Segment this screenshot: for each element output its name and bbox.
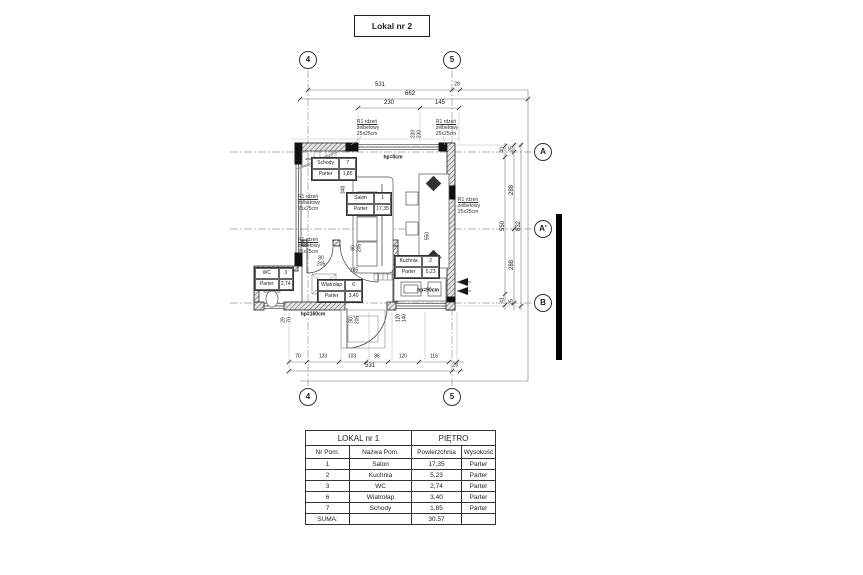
dim-label: 29 xyxy=(454,83,460,88)
parapet-note: hp=160cm xyxy=(301,313,326,318)
dim-label: 531 xyxy=(365,363,375,369)
grid-bubble-5-bottom: 5 xyxy=(443,388,461,406)
dim-label: 230 xyxy=(384,100,394,106)
table-title-row: LOKAL nr 1 PIĘTRO xyxy=(306,431,496,446)
table-row: 2Kuchnia 5,23Parter xyxy=(306,470,496,481)
dim-label: 288 xyxy=(509,260,515,270)
room-label-salon: Salon1 Parter17,35 xyxy=(346,192,392,216)
dim-label: 531 xyxy=(375,82,385,88)
dim-label: 116 xyxy=(430,355,438,360)
grid-bubble-4-top: 4 xyxy=(299,51,317,69)
dim-label: 123 xyxy=(319,355,327,360)
table-title-lokal: LOKAL nr 1 xyxy=(306,431,412,446)
table-sum-row: SUMA: 30.57 xyxy=(306,514,496,525)
table-row: 3WC 2,74Parter xyxy=(306,481,496,492)
door-size-label: 80 205 xyxy=(317,256,325,268)
column-note: R1 rdzeń żelbetowy 25x25cm xyxy=(298,237,320,255)
window-size-label: 230 230 xyxy=(411,130,423,138)
page-title: Lokal nr 2 xyxy=(372,21,412,31)
dim-label: 40 xyxy=(501,147,506,153)
table-header-row: Nr Pom. Nazwa Pom. Powierzchnia Wysokość xyxy=(306,446,496,459)
column-note: R1 rdzeń żelbetowy 25x25cm xyxy=(436,119,458,137)
table-title-pietro: PIĘTRO xyxy=(412,431,496,446)
dim-label: 103 xyxy=(348,355,356,360)
table-row: 1Salon 17,35Parter xyxy=(306,459,496,470)
dim-label: 86 xyxy=(374,355,380,360)
col-header: Nazwa Pom. xyxy=(350,446,412,459)
dim-label: 632 xyxy=(516,221,522,231)
parapet-note: hp=0cm xyxy=(383,156,402,161)
door-size-label: 90 205 xyxy=(351,244,363,252)
dim-label: 145 xyxy=(435,100,445,106)
col-header: Nr Pom. xyxy=(306,446,350,459)
room-label-wiatrolap: Wiatrołap6 Parter3,40 xyxy=(317,279,363,303)
col-header: Wysokość xyxy=(462,446,496,459)
dim-label: 29 70 xyxy=(281,317,293,323)
grid-bubble-4-bottom: 4 xyxy=(299,388,317,406)
grid-bubble-5-top: 5 xyxy=(443,51,461,69)
dim-label: 41 xyxy=(501,297,506,303)
dim-label: 25 xyxy=(510,299,515,305)
grid-bubble-a-prime: A' xyxy=(534,220,552,238)
dim-label: 29 xyxy=(452,364,458,369)
door-size-label: 90 205 xyxy=(349,316,361,324)
table-row: 6Wiatrołap 3,40Parter xyxy=(306,492,496,503)
floor-plan-page: Lokal nr 2 4 5 4 5 A A' B 531 29 662 230… xyxy=(0,0,863,575)
dim-label: 288 xyxy=(509,185,515,195)
dim-label: 70 xyxy=(295,355,301,360)
col-header: Powierzchnia xyxy=(412,446,462,459)
room-label-kuchnia: Kuchnia2 Parter5,23 xyxy=(394,255,440,279)
column-note: R1 rdzeń żelbetowy 25x25cm xyxy=(357,119,379,137)
dim-label: 550 xyxy=(500,221,506,231)
dim-label: 185 xyxy=(350,269,358,274)
parapet-note: hp=90cm xyxy=(417,289,439,294)
room-label-schody: Schody7 Parter1,85 xyxy=(311,157,357,181)
grid-bubble-b: B xyxy=(534,294,552,312)
table-row: 7Schody 1,85Parter xyxy=(306,503,496,514)
sum-value: 30.57 xyxy=(412,514,462,525)
dim-label: 120 xyxy=(399,355,407,360)
column-note: R1 rdzeń żelbetowy 25x25cm xyxy=(298,194,320,212)
column-note: R1 rdzeń żelbetowy 25x25cm xyxy=(458,197,480,215)
dim-label: 662 xyxy=(405,91,415,97)
area-summary-table: LOKAL nr 1 PIĘTRO Nr Pom. Nazwa Pom. Pow… xyxy=(305,430,496,525)
sum-label: SUMA: xyxy=(306,514,350,525)
window-size-label: 120 140 xyxy=(396,314,408,322)
dim-label: 25 xyxy=(510,146,515,152)
grid-bubble-a: A xyxy=(534,143,552,161)
room-label-wc: WC3 Parter2,74 xyxy=(254,267,294,291)
dim-label: 550 xyxy=(426,232,431,240)
title-box: Lokal nr 2 xyxy=(354,15,430,37)
